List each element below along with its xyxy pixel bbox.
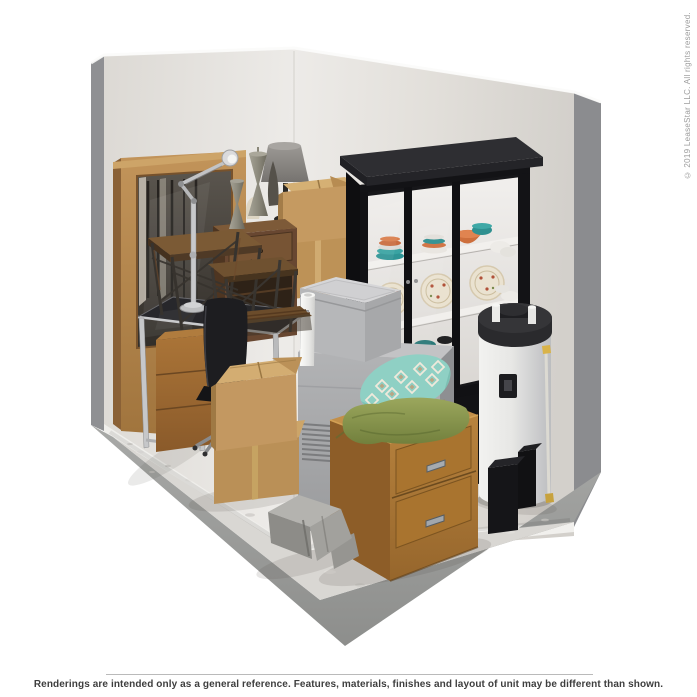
footer-disclaimer: Renderings are intended only as a genera… [0, 679, 697, 690]
copyright-watermark: © 2019 LeaseStar LLC. All rights reserve… [683, 12, 692, 179]
storage-unit-rendering: Renderings are intended only as a genera… [0, 0, 697, 697]
table-lamp-shade-top [268, 142, 301, 150]
freezer-cube [300, 277, 401, 362]
table-lamp-shade [261, 146, 309, 182]
right-wall-outer-edge [574, 93, 601, 527]
box-stack-front [211, 357, 305, 504]
footer-divider [106, 674, 593, 675]
scene-3d-render [0, 0, 697, 697]
mirror-frame-side [113, 158, 121, 430]
left-wall-outer-edge [91, 56, 104, 431]
